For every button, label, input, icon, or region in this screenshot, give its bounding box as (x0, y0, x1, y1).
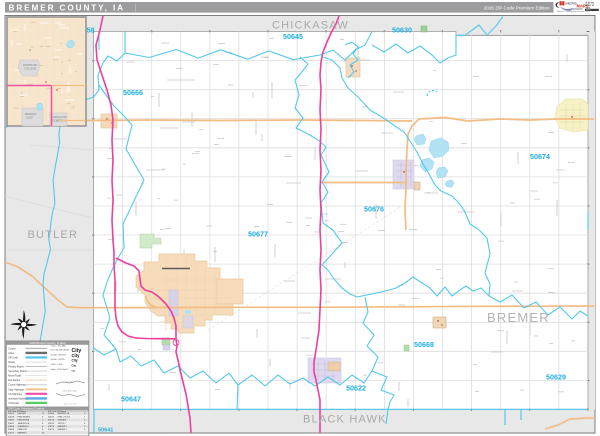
svg-text:WAVERLY: WAVERLY (58, 428, 68, 431)
svg-text:50676: 50676 (364, 205, 384, 214)
svg-text:ZIP Code Urbanized Centers: ZIP Code Urbanized Centers (8, 406, 44, 410)
svg-text:BLACK HAWK: BLACK HAWK (303, 414, 387, 426)
svg-text:County Hwys: County Hwys (63, 381, 74, 384)
svg-text:JANESVILLE: JANESVILLE (18, 422, 31, 425)
svg-text:FREDRKSBG: FREDRKSBG (18, 416, 31, 418)
svg-text:Pop. / Sq. Mile: Pop. / Sq. Mile (52, 346, 67, 348)
svg-text:50631: 50631 (8, 420, 15, 422)
svg-text:50647: 50647 (121, 395, 141, 404)
svg-text:READLYN: READLYN (18, 428, 28, 431)
svg-text:BREMER COUNTY, IA: BREMER COUNTY, IA (9, 3, 125, 12)
svg-text:US Highways: US Highways (8, 394, 23, 396)
svg-text:Over 500,000 /Sq Mi: Over 500,000 /Sq Mi (51, 350, 70, 352)
svg-text:Toll Roads: Toll Roads (8, 403, 20, 405)
svg-text:US & State Hwys: US & State Hwys (63, 390, 77, 393)
svg-text:City: City (72, 359, 78, 363)
svg-text:TRIPOLI: TRIPOLI (58, 423, 66, 425)
svg-text:Secondary Roads: Secondary Roads (8, 370, 27, 373)
svg-text:58: 58 (87, 26, 95, 35)
svg-text:2026 Bremer County, IA Map: 2026 Bremer County, IA Map (30, 341, 66, 345)
svg-text:State Highways: State Highways (8, 388, 25, 391)
svg-text:50673: 50673 (48, 420, 55, 422)
svg-text:50641: 50641 (98, 428, 113, 434)
svg-text:50677: 50677 (586, 10, 591, 12)
svg-text:Roads: Roads (8, 362, 15, 364)
svg-text:Exit Ramps: Exit Ramps (8, 379, 21, 382)
svg-text:City: City (72, 365, 77, 368)
svg-text:BREMER: BREMER (487, 310, 550, 325)
svg-text:WAVERLY: WAVERLY (18, 431, 28, 434)
svg-text:50674: 50674 (48, 423, 55, 425)
svg-text:WAVERLY: WAVERLY (58, 425, 68, 428)
svg-text:50676: 50676 (48, 429, 55, 431)
svg-text:50,000 - 499,999: 50,000 - 499,999 (51, 354, 67, 356)
svg-text:50668: 50668 (8, 429, 15, 431)
svg-text:CHICKASAW: CHICKASAW (272, 20, 349, 32)
svg-text:50629: 50629 (546, 373, 566, 382)
svg-text:2026 ZIP Code Premium Edition: 2026 ZIP Code Premium Edition (484, 6, 550, 11)
svg-text:50630: 50630 (392, 26, 412, 35)
svg-text:50629: 50629 (8, 416, 15, 418)
svg-text:ZIP Code: ZIP Code (8, 357, 18, 359)
svg-text:arketMa: arketMa (565, 2, 577, 6)
svg-text:50622: 50622 (8, 413, 15, 415)
svg-text:50671: 50671 (48, 416, 55, 418)
svg-text:Under 1,000 /Sq Mi: Under 1,000 /Sq Mi (51, 369, 69, 371)
svg-text:10,000 - 49,999: 10,000 - 49,999 (51, 359, 66, 361)
svg-text:Primary Roads: Primary Roads (8, 366, 24, 369)
svg-text:HARLINGTON: HARLINGTON (52, 116, 67, 119)
svg-text:Map data 2026: Map data 2026 (64, 403, 77, 406)
svg-text:PLAINFIELD: PLAINFIELD (18, 425, 30, 428)
svg-text:BREMER, IA: BREMER, IA (58, 412, 70, 415)
svg-text:FREDERIKA: FREDERIKA (18, 419, 30, 422)
svg-text:50674: 50674 (530, 152, 550, 161)
svg-text:Cities: Cities (8, 352, 15, 355)
svg-text:50668: 50668 (414, 340, 434, 349)
svg-text:County Highways: County Highways (8, 384, 27, 387)
svg-text:SUMNER: SUMNER (58, 420, 67, 422)
svg-text:GOLF: GOLF (26, 117, 33, 120)
svg-text:County: County (8, 347, 16, 350)
svg-text:50666: 50666 (48, 413, 55, 415)
svg-text:SHELL ROCK: SHELL ROCK (58, 416, 71, 418)
svg-text:50666: 50666 (8, 426, 15, 428)
svg-text:1,000 - 9,999: 1,000 - 9,999 (51, 364, 64, 366)
svg-text:50677: 50677 (248, 230, 268, 239)
svg-text:50675: 50675 (48, 426, 55, 428)
svg-text:N 42° 29': N 42° 29' (586, 1, 595, 4)
svg-text:50622: 50622 (346, 384, 366, 393)
svg-text:COLLEGE: COLLEGE (25, 68, 37, 71)
svg-text:City: City (72, 353, 81, 358)
svg-text:BUTLER: BUTLER (28, 229, 79, 241)
svg-text:50666: 50666 (123, 88, 143, 97)
svg-text:Minor Roads: Minor Roads (8, 375, 22, 378)
svg-text:DENVER: DENVER (18, 413, 27, 415)
svg-text:50645: 50645 (283, 32, 303, 41)
svg-text:50647: 50647 (8, 423, 15, 425)
svg-text:50677: 50677 (8, 432, 15, 434)
